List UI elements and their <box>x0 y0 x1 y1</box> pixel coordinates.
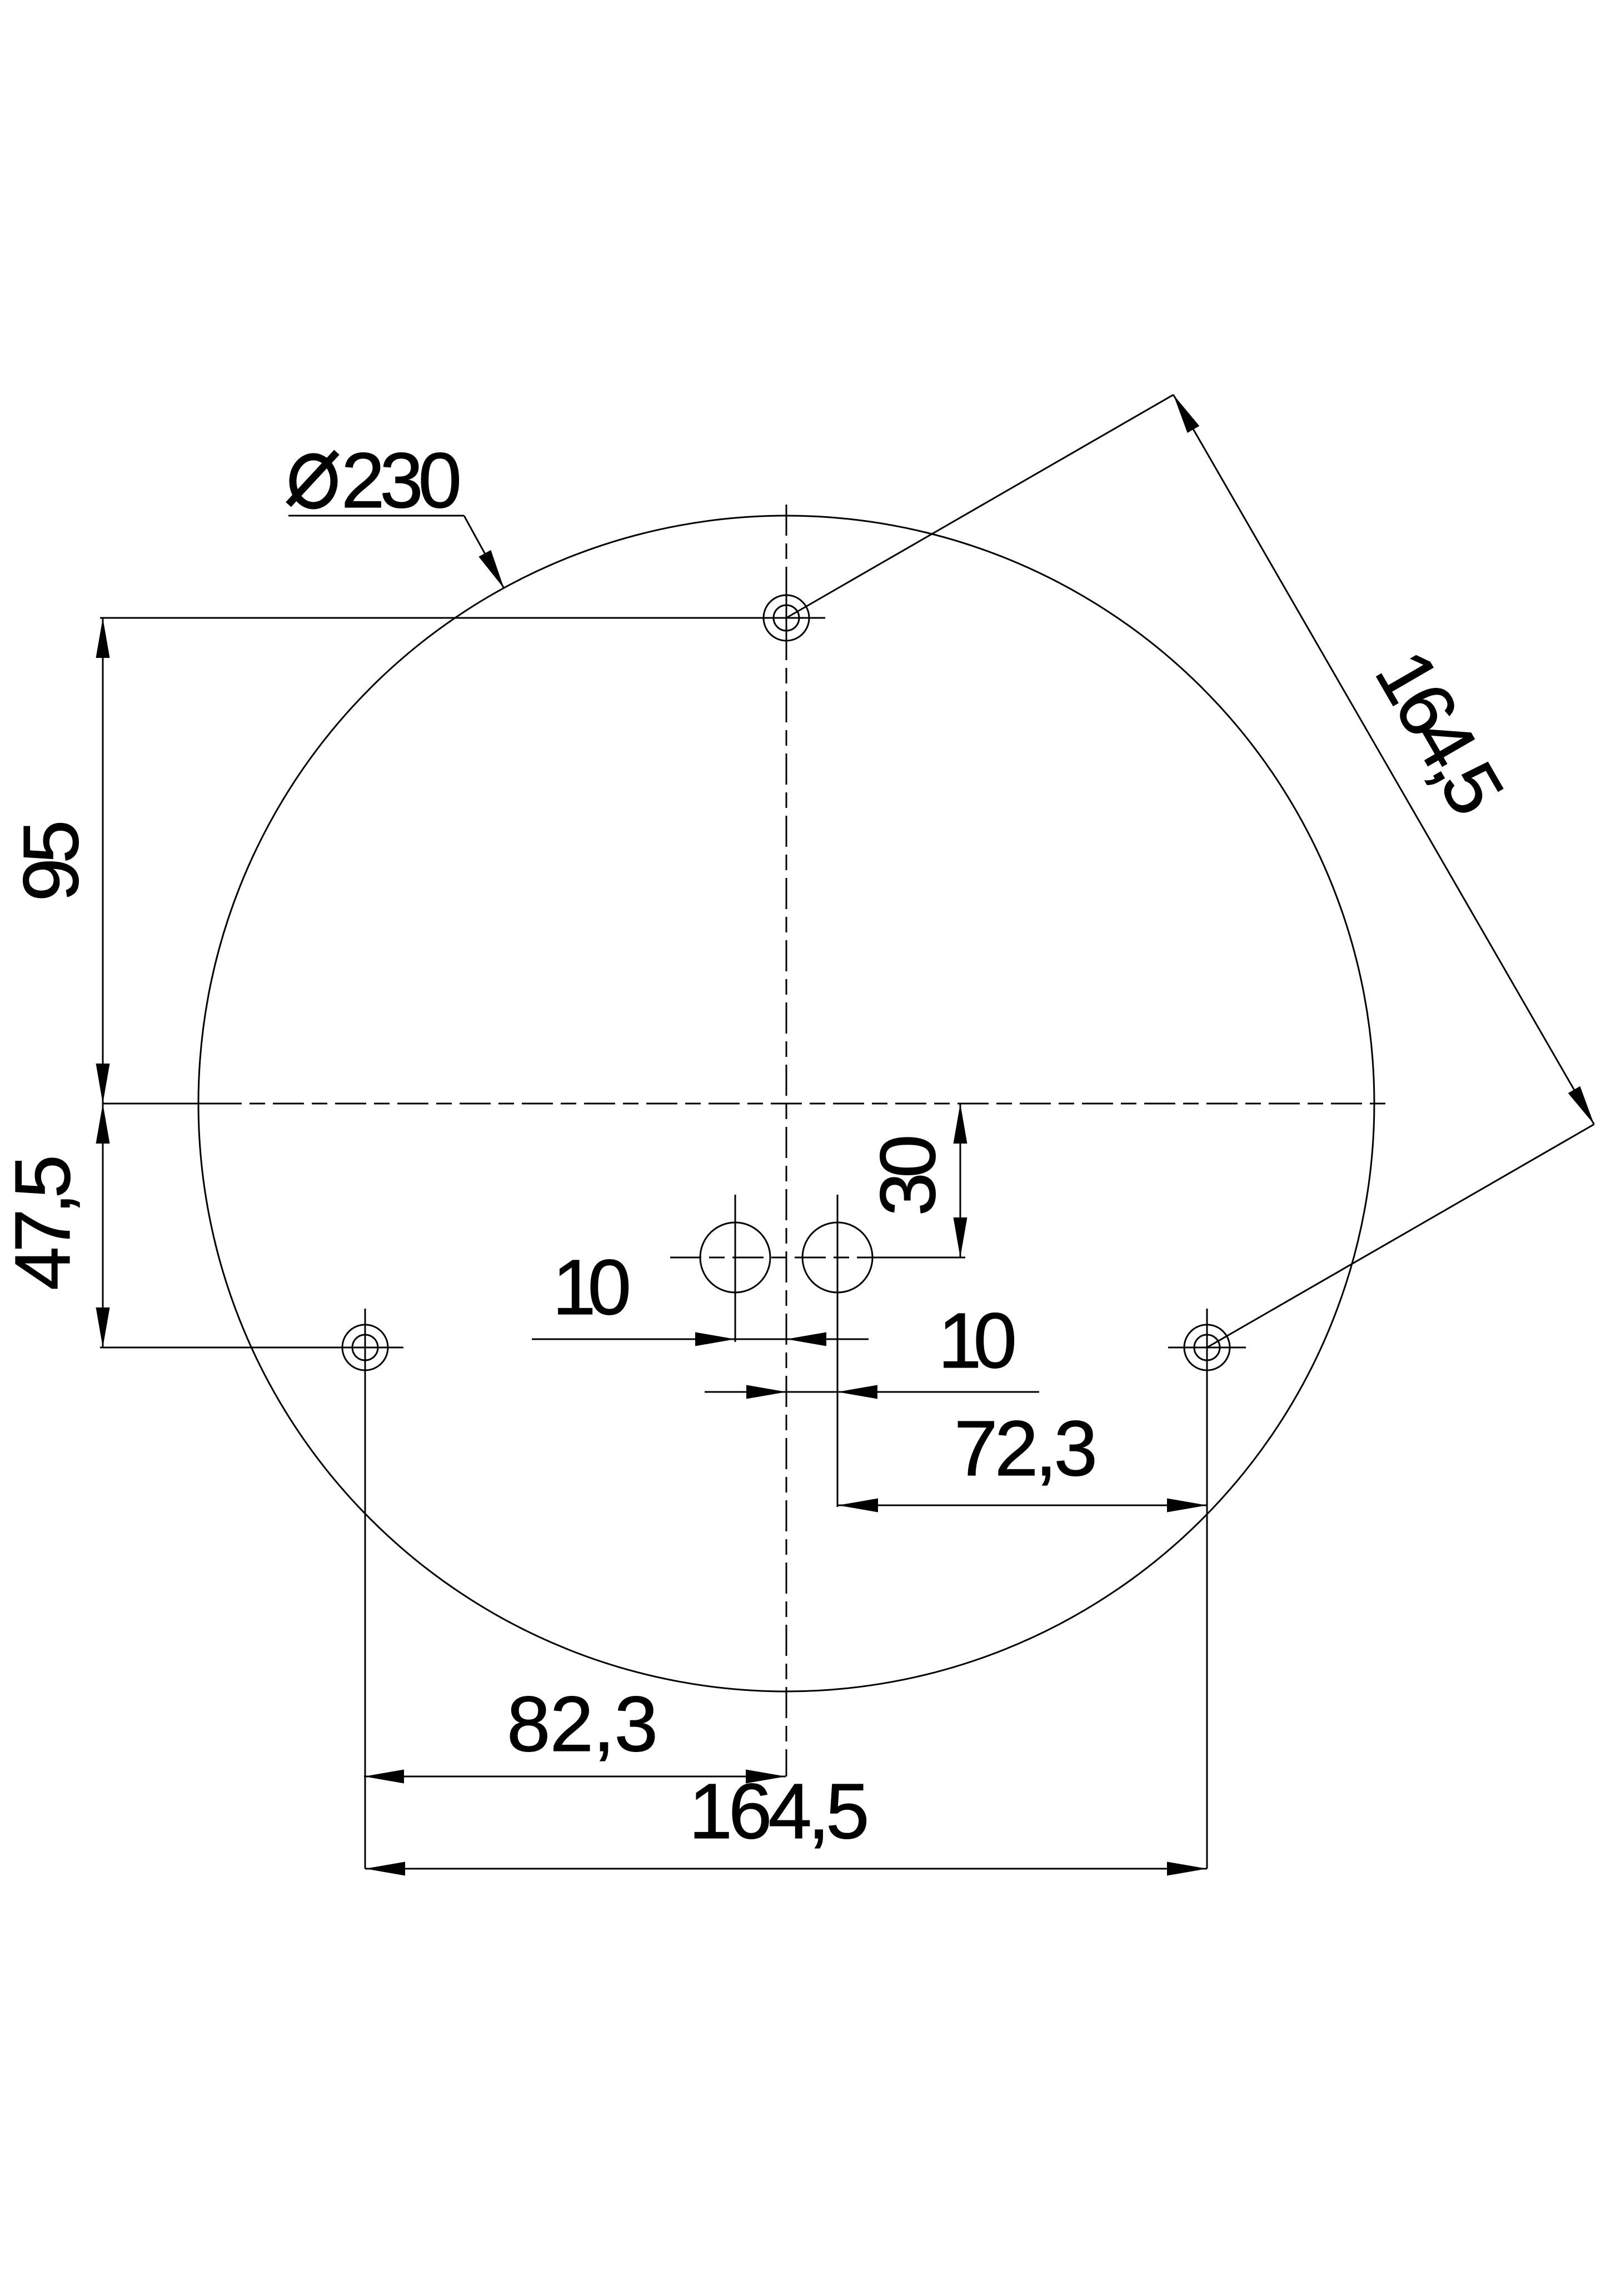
svg-text:95: 95 <box>7 820 94 902</box>
svg-text:164,5: 164,5 <box>689 1767 870 1855</box>
svg-text:230: 230 <box>341 436 462 524</box>
svg-text:82,3: 82,3 <box>507 1680 658 1768</box>
svg-text:72,3: 72,3 <box>954 1404 1098 1492</box>
svg-text:10: 10 <box>552 1243 631 1331</box>
svg-text:30: 30 <box>864 1135 951 1216</box>
svg-text:10: 10 <box>938 1296 1017 1384</box>
svg-text:47,5: 47,5 <box>0 1155 86 1290</box>
